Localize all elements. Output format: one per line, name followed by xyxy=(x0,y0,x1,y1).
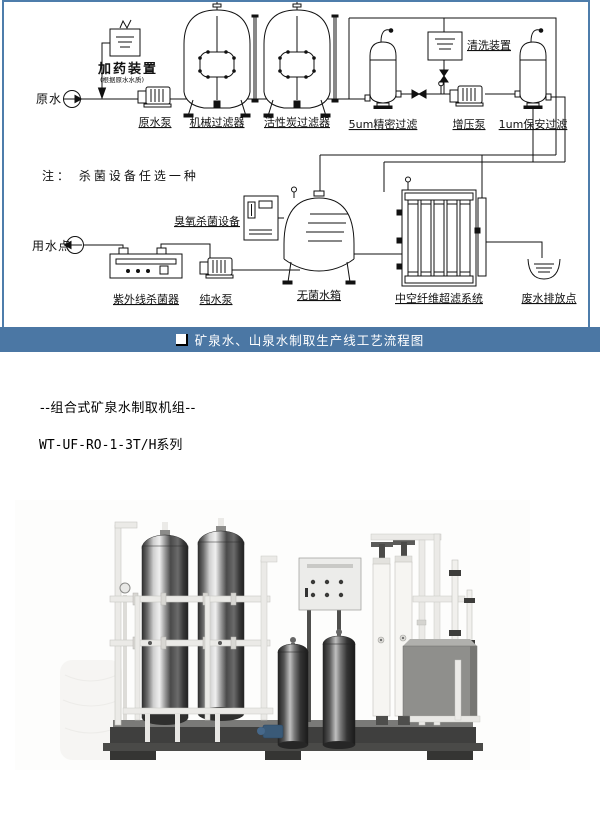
label-booster-pump: 增压泵 xyxy=(453,117,486,131)
label-uf-system: 中空纤维超滤系统 xyxy=(395,291,483,305)
label-raw-water: 原水 xyxy=(36,92,62,106)
process-flow-diagram: 原水 加药装置 (根据原水水质) 原水泵 机械过滤器 活性炭过滤器 5um精密过… xyxy=(4,2,592,327)
caption-bar: 矿泉水、山泉水制取生产线工艺流程图 xyxy=(0,327,600,352)
equipment-photo-illustration xyxy=(15,500,530,770)
ozone-device-icon xyxy=(244,196,278,240)
diagram-frame: 原水 加药装置 (根据原水水质) 原水泵 机械过滤器 活性炭过滤器 5um精密过… xyxy=(2,0,590,327)
uf-system-icon xyxy=(397,177,486,286)
label-dosing-device: 加药装置 xyxy=(97,61,158,77)
label-dosing-note: (根据原水水质) xyxy=(100,75,144,84)
waste-drain-icon xyxy=(528,259,560,279)
dosing-device-icon xyxy=(99,20,141,98)
sterile-tank-icon xyxy=(283,187,355,284)
label-carbon-filter: 活性炭过滤器 xyxy=(264,115,330,129)
photo-stainless-tank-left xyxy=(142,522,188,725)
photo-filter-housing-right xyxy=(323,629,355,749)
label-filter-1um: 1um保安过滤 xyxy=(499,117,568,131)
label-uv-sterilizer: 紫外线杀菌器 xyxy=(113,292,179,306)
cleaning-device-icon xyxy=(428,32,462,82)
booster-pump-icon xyxy=(450,86,483,106)
square-bullet-icon xyxy=(176,334,188,346)
valve-icon xyxy=(412,90,426,98)
mechanical-filter-icon xyxy=(184,2,258,117)
page: 原水 加药装置 (根据原水水质) 原水泵 机械过滤器 活性炭过滤器 5um精密过… xyxy=(0,0,600,827)
label-ozone-device: 臭氧杀菌设备 xyxy=(174,214,240,228)
label-raw-water-pump: 原水泵 xyxy=(139,116,172,129)
label-note: 注： 杀菌设备任选一种 xyxy=(42,168,199,183)
uv-sterilizer-icon xyxy=(110,248,182,278)
label-sterile-tank: 无菌水箱 xyxy=(297,288,341,302)
product-series-title: --组合式矿泉水制取机组-- xyxy=(40,397,196,416)
label-pure-water-pump: 纯水泵 xyxy=(200,293,233,306)
filter-5um-icon xyxy=(365,29,401,109)
pure-water-pump-icon xyxy=(200,258,233,278)
photo-gray-tank xyxy=(403,639,480,722)
label-filter-5um: 5um精密过滤 xyxy=(349,117,418,131)
equipment-photo xyxy=(15,500,530,770)
product-model-code: WT-UF-RO-1-3T/H系列 xyxy=(39,434,182,453)
raw-water-pump-icon xyxy=(138,87,171,107)
label-mechanical-filter: 机械过滤器 xyxy=(190,115,245,129)
filter-1um-icon xyxy=(515,29,551,109)
label-cleaning-device: 清洗装置 xyxy=(467,39,511,52)
carbon-filter-icon xyxy=(264,2,338,117)
label-water-use-point: 用水点 xyxy=(32,239,71,253)
label-waste-drain: 废水排放点 xyxy=(522,291,577,305)
raw-water-symbol xyxy=(64,91,82,108)
caption-text: 矿泉水、山泉水制取生产线工艺流程图 xyxy=(195,330,425,349)
